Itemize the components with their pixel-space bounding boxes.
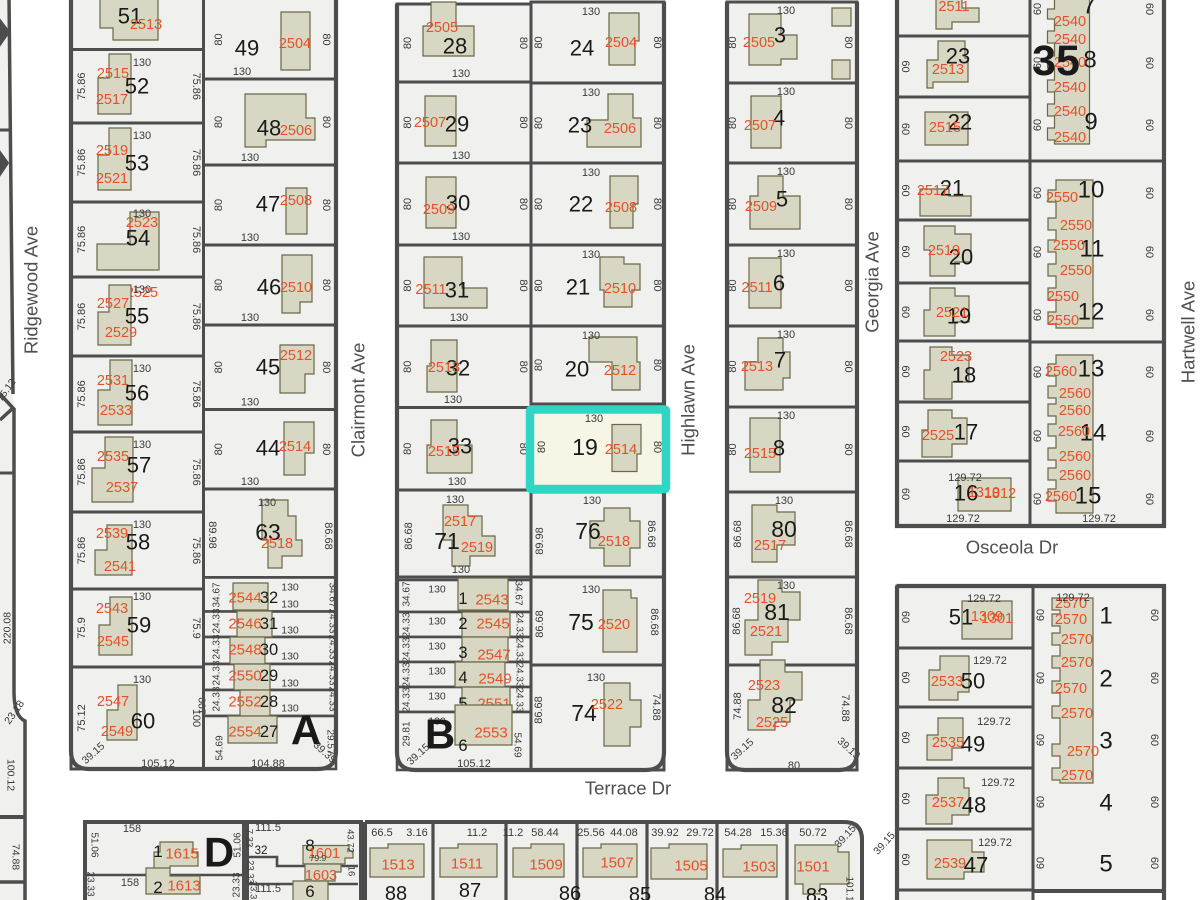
- svg-text:2543: 2543: [475, 591, 508, 608]
- svg-text:15.36: 15.36: [760, 827, 788, 839]
- svg-text:80: 80: [533, 359, 545, 371]
- svg-text:130: 130: [587, 672, 605, 684]
- svg-text:1501: 1501: [796, 858, 829, 875]
- svg-text:2: 2: [153, 878, 162, 897]
- svg-text:32: 32: [260, 589, 278, 607]
- svg-text:130: 130: [444, 394, 462, 406]
- svg-text:2509: 2509: [423, 202, 455, 218]
- svg-text:2504: 2504: [279, 36, 311, 52]
- svg-text:1: 1: [153, 842, 162, 861]
- svg-text:45: 45: [256, 355, 280, 380]
- svg-text:2537: 2537: [932, 795, 964, 811]
- svg-text:49: 49: [961, 732, 985, 757]
- svg-text:75.86: 75.86: [76, 458, 88, 486]
- svg-text:60: 60: [899, 611, 911, 623]
- svg-text:21: 21: [566, 275, 590, 300]
- svg-text:80: 80: [320, 33, 332, 45]
- svg-text:11.2: 11.2: [503, 827, 524, 839]
- svg-text:2550: 2550: [1053, 238, 1085, 254]
- svg-text:47: 47: [256, 192, 280, 217]
- svg-text:86.68: 86.68: [648, 608, 660, 636]
- svg-text:80: 80: [533, 279, 545, 291]
- svg-text:2546: 2546: [228, 615, 261, 632]
- svg-text:130: 130: [582, 6, 600, 18]
- svg-text:74.88: 74.88: [9, 844, 21, 870]
- svg-text:158: 158: [121, 877, 139, 889]
- svg-text:2560: 2560: [1059, 403, 1091, 419]
- svg-text:2533: 2533: [100, 403, 132, 419]
- svg-text:60: 60: [1143, 246, 1155, 258]
- svg-text:130: 130: [777, 410, 795, 422]
- svg-text:86: 86: [559, 883, 581, 900]
- svg-text:7.33: 7.33: [244, 829, 255, 848]
- svg-text:2560: 2560: [1045, 489, 1077, 505]
- svg-text:2517: 2517: [96, 92, 128, 108]
- svg-text:1513: 1513: [381, 856, 414, 873]
- svg-text:2570: 2570: [1067, 744, 1099, 760]
- svg-text:2511: 2511: [938, 0, 969, 15]
- svg-text:86.68: 86.68: [322, 522, 334, 550]
- svg-text:2535: 2535: [932, 735, 964, 751]
- svg-text:130: 130: [452, 68, 470, 80]
- svg-text:86.68: 86.68: [731, 607, 743, 635]
- svg-text:2570: 2570: [1055, 681, 1087, 697]
- svg-text:2510: 2510: [604, 281, 636, 297]
- svg-text:2519: 2519: [928, 243, 960, 259]
- svg-text:2527: 2527: [97, 296, 129, 312]
- svg-text:60: 60: [1143, 3, 1155, 15]
- svg-text:2504: 2504: [605, 35, 637, 51]
- svg-text:2550: 2550: [1060, 218, 1092, 234]
- svg-text:130: 130: [777, 86, 795, 98]
- svg-text:2547: 2547: [477, 646, 510, 663]
- svg-text:158: 158: [123, 823, 141, 835]
- svg-text:60: 60: [1032, 246, 1044, 258]
- svg-text:75.86: 75.86: [76, 72, 88, 100]
- svg-text:2507: 2507: [744, 118, 776, 134]
- svg-text:75.86: 75.86: [190, 380, 202, 408]
- svg-text:60: 60: [899, 488, 911, 500]
- svg-text:60: 60: [1032, 119, 1044, 131]
- svg-text:34.67: 34.67: [402, 581, 413, 606]
- svg-text:60: 60: [899, 123, 911, 135]
- svg-text:2570: 2570: [1061, 706, 1093, 722]
- svg-text:60: 60: [1143, 119, 1155, 131]
- svg-text:2550: 2550: [228, 667, 261, 684]
- svg-text:60: 60: [1148, 609, 1160, 621]
- svg-text:2513: 2513: [741, 359, 773, 375]
- svg-text:130: 130: [133, 284, 151, 296]
- svg-text:75.86: 75.86: [190, 72, 202, 100]
- svg-text:80: 80: [842, 360, 854, 372]
- svg-text:60: 60: [1032, 57, 1044, 69]
- svg-text:24.33: 24.33: [402, 662, 413, 687]
- svg-text:86.68: 86.68: [842, 607, 854, 635]
- svg-text:5: 5: [776, 187, 788, 212]
- svg-text:2505: 2505: [743, 35, 775, 51]
- svg-text:75.86: 75.86: [76, 226, 88, 254]
- svg-text:130: 130: [428, 666, 446, 678]
- svg-text:6: 6: [458, 737, 467, 755]
- svg-text:5: 5: [1099, 850, 1112, 877]
- svg-text:2523: 2523: [940, 349, 972, 365]
- svg-text:2570: 2570: [1055, 612, 1087, 628]
- svg-text:60: 60: [899, 792, 911, 804]
- svg-text:2519: 2519: [96, 143, 128, 159]
- svg-text:1507: 1507: [600, 854, 633, 871]
- svg-text:2508: 2508: [605, 200, 637, 216]
- svg-text:2544: 2544: [228, 589, 261, 606]
- svg-text:60: 60: [1143, 493, 1155, 505]
- svg-text:2509: 2509: [745, 199, 777, 215]
- svg-text:74.88: 74.88: [839, 694, 851, 722]
- svg-text:6: 6: [305, 882, 314, 900]
- svg-text:130: 130: [582, 249, 600, 261]
- svg-text:60: 60: [131, 709, 155, 734]
- svg-text:13: 13: [1078, 355, 1105, 382]
- svg-text:129.72: 129.72: [973, 655, 1007, 667]
- svg-text:80: 80: [651, 36, 663, 48]
- svg-text:43.72: 43.72: [345, 829, 356, 853]
- svg-text:60: 60: [1148, 857, 1160, 869]
- svg-text:23: 23: [568, 113, 592, 138]
- svg-text:80: 80: [651, 117, 663, 129]
- svg-text:1: 1: [1099, 602, 1112, 629]
- svg-text:57: 57: [127, 453, 151, 478]
- svg-text:130: 130: [582, 330, 600, 342]
- svg-text:80: 80: [651, 359, 663, 371]
- svg-text:86.68: 86.68: [645, 520, 657, 548]
- svg-text:60: 60: [1032, 493, 1044, 505]
- svg-text:89.98: 89.98: [206, 521, 218, 549]
- svg-text:49: 49: [235, 36, 259, 61]
- svg-text:1301: 1301: [981, 611, 1013, 627]
- svg-text:80: 80: [402, 116, 414, 128]
- svg-text:130: 130: [582, 584, 600, 596]
- svg-text:Georgia Ave: Georgia Ave: [861, 231, 882, 332]
- svg-text:D: D: [204, 829, 234, 876]
- svg-text:17: 17: [954, 420, 978, 445]
- svg-text:2519: 2519: [744, 591, 776, 607]
- svg-text:1505: 1505: [674, 857, 707, 874]
- svg-text:130: 130: [133, 674, 151, 686]
- svg-text:60: 60: [1035, 857, 1047, 869]
- svg-text:11.2: 11.2: [467, 827, 488, 839]
- svg-text:86.68: 86.68: [842, 520, 854, 548]
- svg-text:24.33: 24.33: [514, 662, 525, 687]
- svg-text:24: 24: [570, 36, 594, 61]
- svg-text:75.86: 75.86: [76, 537, 88, 565]
- svg-text:2570: 2570: [1061, 768, 1093, 784]
- svg-text:58: 58: [126, 530, 150, 555]
- svg-text:129.72: 129.72: [1082, 513, 1116, 525]
- svg-text:24.33: 24.33: [514, 637, 525, 662]
- svg-text:2529: 2529: [105, 325, 137, 341]
- svg-text:129.72: 129.72: [977, 716, 1011, 728]
- svg-text:2: 2: [1099, 665, 1112, 692]
- svg-text:80: 80: [517, 198, 529, 210]
- svg-text:80: 80: [842, 117, 854, 129]
- svg-text:2540: 2540: [1054, 130, 1086, 146]
- svg-text:130: 130: [582, 167, 600, 179]
- svg-text:130: 130: [775, 495, 793, 507]
- svg-text:2543: 2543: [96, 601, 128, 617]
- svg-text:2507: 2507: [414, 115, 446, 131]
- svg-text:60: 60: [1035, 609, 1047, 621]
- svg-text:130: 130: [777, 580, 795, 592]
- svg-text:2570: 2570: [1061, 655, 1093, 671]
- svg-text:130: 130: [452, 564, 470, 576]
- svg-text:130: 130: [241, 152, 259, 164]
- svg-text:80: 80: [517, 116, 529, 128]
- svg-text:80: 80: [213, 33, 225, 45]
- svg-text:60: 60: [1035, 672, 1047, 684]
- svg-text:60: 60: [1148, 672, 1160, 684]
- svg-text:2549: 2549: [478, 670, 511, 687]
- svg-text:50.72: 50.72: [799, 827, 827, 839]
- svg-text:60: 60: [899, 60, 911, 72]
- svg-text:24.33: 24.33: [402, 612, 413, 637]
- svg-text:2525: 2525: [756, 715, 788, 731]
- svg-text:59: 59: [127, 613, 151, 638]
- svg-text:1503: 1503: [742, 858, 775, 875]
- svg-text:1613: 1613: [167, 877, 200, 894]
- svg-text:130: 130: [281, 651, 299, 663]
- svg-text:2549: 2549: [101, 724, 133, 740]
- svg-text:130: 130: [446, 494, 464, 506]
- svg-text:130: 130: [583, 495, 601, 507]
- svg-text:Osceola Dr: Osceola Dr: [966, 536, 1059, 557]
- svg-text:80: 80: [517, 37, 529, 49]
- svg-text:130: 130: [777, 329, 795, 341]
- svg-text:71: 71: [434, 528, 460, 554]
- svg-text:129.72: 129.72: [978, 837, 1012, 849]
- svg-text:3: 3: [458, 644, 467, 662]
- svg-text:80: 80: [533, 198, 545, 210]
- svg-text:1509: 1509: [529, 856, 562, 873]
- svg-text:130: 130: [133, 208, 151, 220]
- svg-text:53: 53: [125, 151, 149, 176]
- svg-text:2570: 2570: [1061, 632, 1093, 648]
- svg-text:80: 80: [213, 116, 225, 128]
- svg-text:60: 60: [1143, 309, 1155, 321]
- svg-text:2511: 2511: [741, 280, 772, 296]
- svg-text:80: 80: [213, 199, 225, 211]
- svg-text:2535: 2535: [97, 449, 129, 465]
- svg-text:2515: 2515: [97, 66, 129, 82]
- svg-text:24.33: 24.33: [212, 634, 223, 659]
- svg-text:2520: 2520: [598, 617, 630, 633]
- svg-text:60: 60: [1148, 796, 1160, 808]
- svg-text:130: 130: [133, 57, 151, 69]
- svg-text:2554: 2554: [228, 723, 261, 740]
- svg-text:2521: 2521: [936, 305, 968, 321]
- svg-text:66.5: 66.5: [371, 827, 392, 839]
- svg-text:10: 10: [1078, 176, 1105, 203]
- svg-text:4: 4: [458, 669, 467, 687]
- svg-text:54.69: 54.69: [215, 735, 226, 760]
- svg-text:60: 60: [1032, 309, 1044, 321]
- svg-text:60: 60: [1035, 796, 1047, 808]
- svg-text:24.33: 24.33: [212, 608, 223, 633]
- svg-text:80: 80: [320, 443, 332, 455]
- svg-text:2540: 2540: [1054, 104, 1086, 120]
- svg-text:54.28: 54.28: [724, 827, 752, 839]
- svg-text:3.16: 3.16: [406, 827, 427, 839]
- svg-text:51.06: 51.06: [89, 832, 100, 857]
- svg-text:51: 51: [949, 605, 973, 630]
- svg-text:2515: 2515: [929, 120, 961, 136]
- svg-text:60: 60: [1035, 734, 1047, 746]
- svg-text:60: 60: [899, 365, 911, 377]
- svg-text:2517: 2517: [917, 183, 949, 199]
- svg-text:2560: 2560: [1045, 364, 1077, 380]
- svg-text:80: 80: [517, 279, 529, 291]
- svg-text:31: 31: [445, 278, 469, 303]
- svg-text:100.12: 100.12: [4, 759, 16, 791]
- svg-text:2521: 2521: [750, 624, 782, 640]
- svg-text:24.33: 24.33: [402, 637, 413, 662]
- svg-text:130: 130: [450, 312, 468, 324]
- svg-text:130: 130: [281, 678, 299, 690]
- svg-text:16: 16: [346, 866, 357, 877]
- svg-text:29: 29: [445, 112, 469, 137]
- svg-text:2511: 2511: [415, 282, 446, 298]
- svg-text:75: 75: [568, 609, 594, 635]
- svg-text:130: 130: [281, 599, 299, 611]
- svg-text:85: 85: [629, 884, 651, 900]
- svg-text:60: 60: [899, 731, 911, 743]
- svg-text:130: 130: [281, 582, 299, 594]
- svg-text:Clairmont Ave: Clairmont Ave: [347, 343, 368, 458]
- svg-text:2510: 2510: [280, 280, 312, 296]
- svg-text:60: 60: [899, 853, 911, 865]
- svg-text:80: 80: [842, 36, 854, 48]
- svg-text:2523: 2523: [748, 678, 780, 694]
- svg-text:130: 130: [428, 584, 446, 596]
- svg-text:29.81: 29.81: [402, 721, 413, 746]
- svg-text:75.9: 75.9: [76, 617, 88, 638]
- svg-text:12: 12: [1078, 298, 1105, 325]
- svg-text:80: 80: [213, 279, 225, 291]
- svg-text:2539: 2539: [96, 526, 128, 542]
- svg-text:54.69: 54.69: [512, 732, 523, 757]
- svg-text:4: 4: [1099, 789, 1112, 816]
- svg-text:2512: 2512: [604, 363, 636, 379]
- svg-text:130: 130: [133, 591, 151, 603]
- svg-text:15: 15: [1075, 482, 1102, 509]
- svg-text:2541: 2541: [104, 559, 136, 575]
- svg-text:29.72: 29.72: [686, 827, 714, 839]
- svg-text:80: 80: [651, 441, 663, 453]
- svg-text:2548: 2548: [228, 641, 261, 658]
- svg-text:80: 80: [533, 36, 545, 48]
- svg-text:130: 130: [241, 232, 259, 244]
- svg-text:111.5: 111.5: [255, 883, 281, 895]
- svg-text:60: 60: [1143, 57, 1155, 69]
- svg-text:2560: 2560: [1059, 386, 1091, 402]
- svg-text:80: 80: [320, 199, 332, 211]
- svg-text:60: 60: [899, 425, 911, 437]
- svg-text:60: 60: [1032, 430, 1044, 442]
- svg-text:20: 20: [565, 357, 589, 382]
- svg-text:2547: 2547: [97, 694, 129, 710]
- svg-text:130: 130: [582, 87, 600, 99]
- svg-text:Highlawn Ave: Highlawn Ave: [677, 344, 698, 456]
- svg-text:130: 130: [777, 166, 795, 178]
- svg-text:130: 130: [241, 312, 259, 324]
- svg-text:28: 28: [260, 693, 278, 711]
- svg-text:2533: 2533: [931, 674, 963, 690]
- svg-text:80: 80: [517, 361, 529, 373]
- svg-text:9: 9: [1084, 108, 1097, 135]
- svg-text:80: 80: [213, 361, 225, 373]
- svg-text:46: 46: [257, 275, 281, 300]
- svg-text:23.33: 23.33: [232, 872, 243, 897]
- svg-text:6: 6: [773, 271, 785, 296]
- svg-text:130: 130: [428, 616, 446, 628]
- svg-text:74.88: 74.88: [650, 693, 662, 721]
- svg-text:75.86: 75.86: [76, 303, 88, 331]
- svg-text:31: 31: [260, 615, 278, 633]
- svg-text:2560: 2560: [1059, 449, 1091, 465]
- svg-text:7: 7: [774, 348, 786, 373]
- svg-text:25.56: 25.56: [577, 827, 605, 839]
- svg-text:89.98: 89.98: [534, 527, 546, 555]
- svg-text:2525: 2525: [922, 428, 954, 444]
- svg-text:80: 80: [533, 117, 545, 129]
- svg-text:86.68: 86.68: [403, 522, 415, 550]
- svg-text:80: 80: [651, 279, 663, 291]
- svg-text:47: 47: [964, 853, 988, 878]
- svg-text:75.86: 75.86: [190, 226, 202, 254]
- svg-text:80: 80: [402, 37, 414, 49]
- svg-text:2515: 2515: [744, 446, 776, 462]
- svg-text:130: 130: [452, 231, 470, 243]
- svg-text:87: 87: [459, 880, 481, 900]
- svg-text:130: 130: [133, 519, 151, 531]
- svg-text:129.72: 129.72: [1056, 592, 1090, 604]
- svg-text:2515: 2515: [428, 444, 460, 460]
- svg-text:24.33: 24.33: [212, 660, 223, 685]
- svg-text:80: 80: [213, 443, 225, 455]
- svg-text:130: 130: [452, 150, 470, 162]
- svg-text:2539: 2539: [934, 856, 966, 872]
- svg-text:24.33: 24.33: [514, 687, 525, 712]
- svg-text:129.72: 129.72: [967, 593, 1001, 605]
- svg-text:129.72: 129.72: [948, 472, 982, 484]
- svg-text:24.33: 24.33: [514, 612, 525, 637]
- svg-text:75.12: 75.12: [76, 704, 88, 732]
- svg-text:24.33: 24.33: [212, 686, 223, 711]
- svg-text:3: 3: [774, 23, 786, 48]
- svg-text:80: 80: [842, 443, 854, 455]
- svg-text:2545: 2545: [97, 634, 129, 650]
- svg-text:1812: 1812: [984, 486, 1016, 502]
- svg-text:2517: 2517: [754, 538, 786, 554]
- svg-text:32: 32: [255, 845, 268, 857]
- svg-text:2560: 2560: [1059, 468, 1091, 484]
- svg-text:44.08: 44.08: [610, 827, 638, 839]
- svg-text:2519: 2519: [461, 540, 493, 556]
- svg-text:80: 80: [320, 361, 332, 373]
- svg-text:2550: 2550: [1047, 313, 1079, 329]
- svg-text:130: 130: [133, 439, 151, 451]
- svg-text:60: 60: [1032, 3, 1044, 15]
- svg-text:2550: 2550: [1046, 190, 1078, 206]
- svg-text:130: 130: [281, 625, 299, 637]
- svg-text:130: 130: [777, 5, 795, 17]
